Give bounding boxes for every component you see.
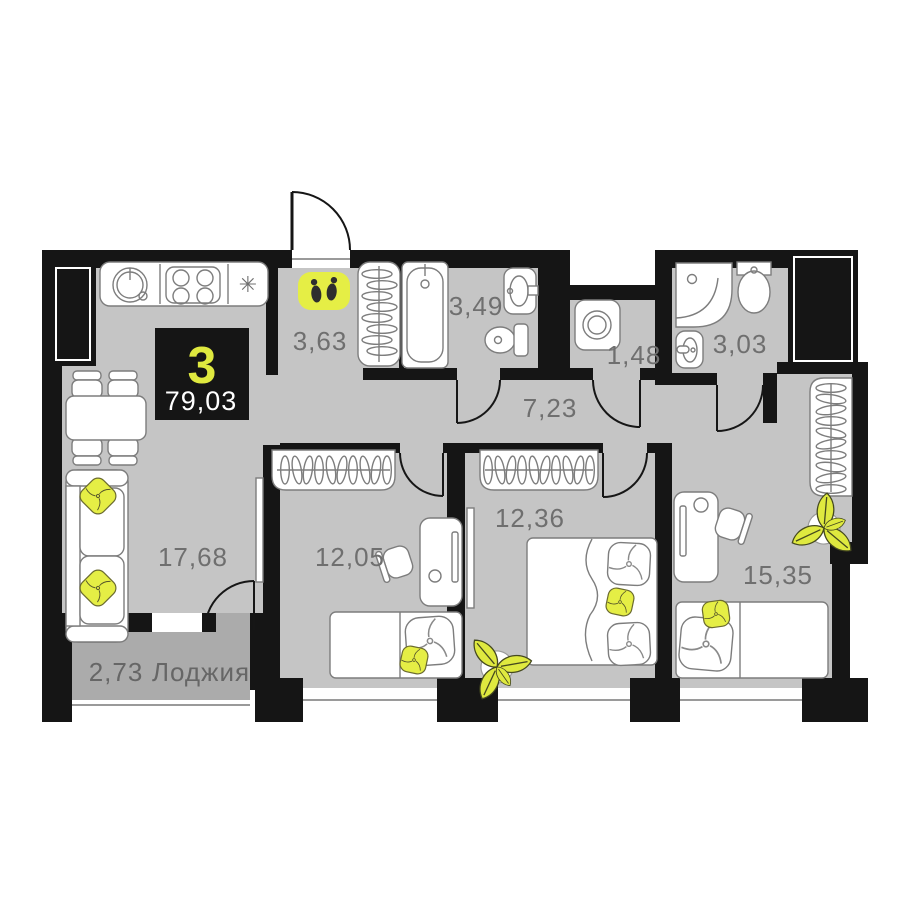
bed2-accent-cushion <box>605 587 636 618</box>
label-hall-area: 3,63 <box>293 326 348 356</box>
label-shower-area: 3,03 <box>713 329 768 359</box>
label-loggia-area: 2,73 <box>89 657 144 687</box>
dining-table <box>66 396 146 440</box>
monitor-bedroom3 <box>680 506 686 556</box>
floor-plan: ✳ <box>0 0 918 918</box>
badge-total-area: 79,03 <box>165 386 238 416</box>
shaft-right <box>788 250 858 368</box>
label-bathroom-area: 3,49 <box>449 291 504 321</box>
label-bedroom2-area: 12,36 <box>495 503 565 533</box>
bed1-accent-cushion <box>399 645 430 676</box>
entrance-footprints-badge <box>298 272 350 310</box>
label-laundry-area: 1,48 <box>607 340 662 370</box>
label-bedroom3-area: 15,35 <box>743 560 813 590</box>
bathtub <box>402 262 448 368</box>
entrance-door-arc <box>292 192 350 250</box>
bathroom-toilet <box>485 327 515 353</box>
sofa <box>66 470 128 642</box>
label-corridor-area: 7,23 <box>523 393 578 423</box>
label-loggia-name: Лоджия <box>152 657 250 687</box>
floor-plan-page: ✳ <box>0 0 918 918</box>
label-living-area: 17,68 <box>158 542 228 572</box>
radiator-bedroom2 <box>467 508 474 608</box>
bed3-accent-cushion <box>701 599 730 628</box>
apartment-badge: 3 79,03 <box>155 328 249 420</box>
monitor-bedroom1 <box>452 532 458 582</box>
radiator-living <box>256 478 263 582</box>
label-bedroom1-area: 12,05 <box>315 542 385 572</box>
fridge-asterisk-icon: ✳ <box>239 273 257 298</box>
